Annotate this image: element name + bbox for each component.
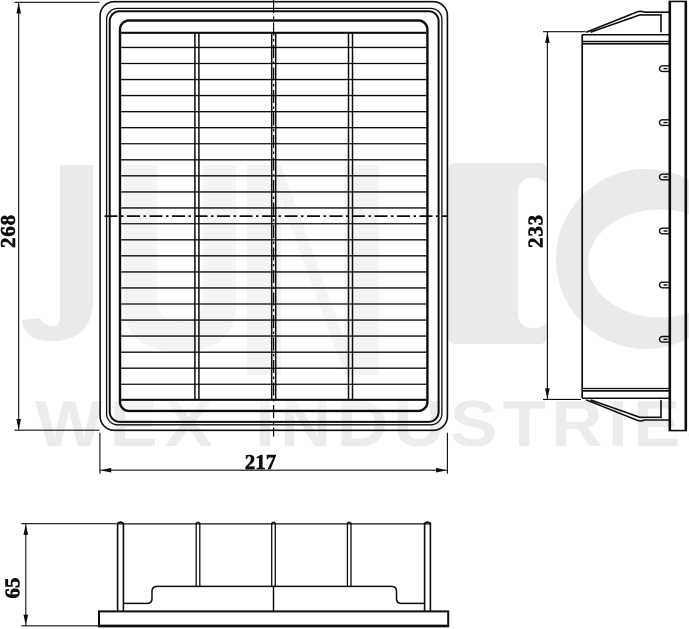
svg-text:233: 233 bbox=[523, 214, 547, 248]
svg-text:65: 65 bbox=[0, 578, 24, 599]
svg-text:268: 268 bbox=[0, 214, 20, 248]
svg-text:217: 217 bbox=[245, 450, 277, 474]
